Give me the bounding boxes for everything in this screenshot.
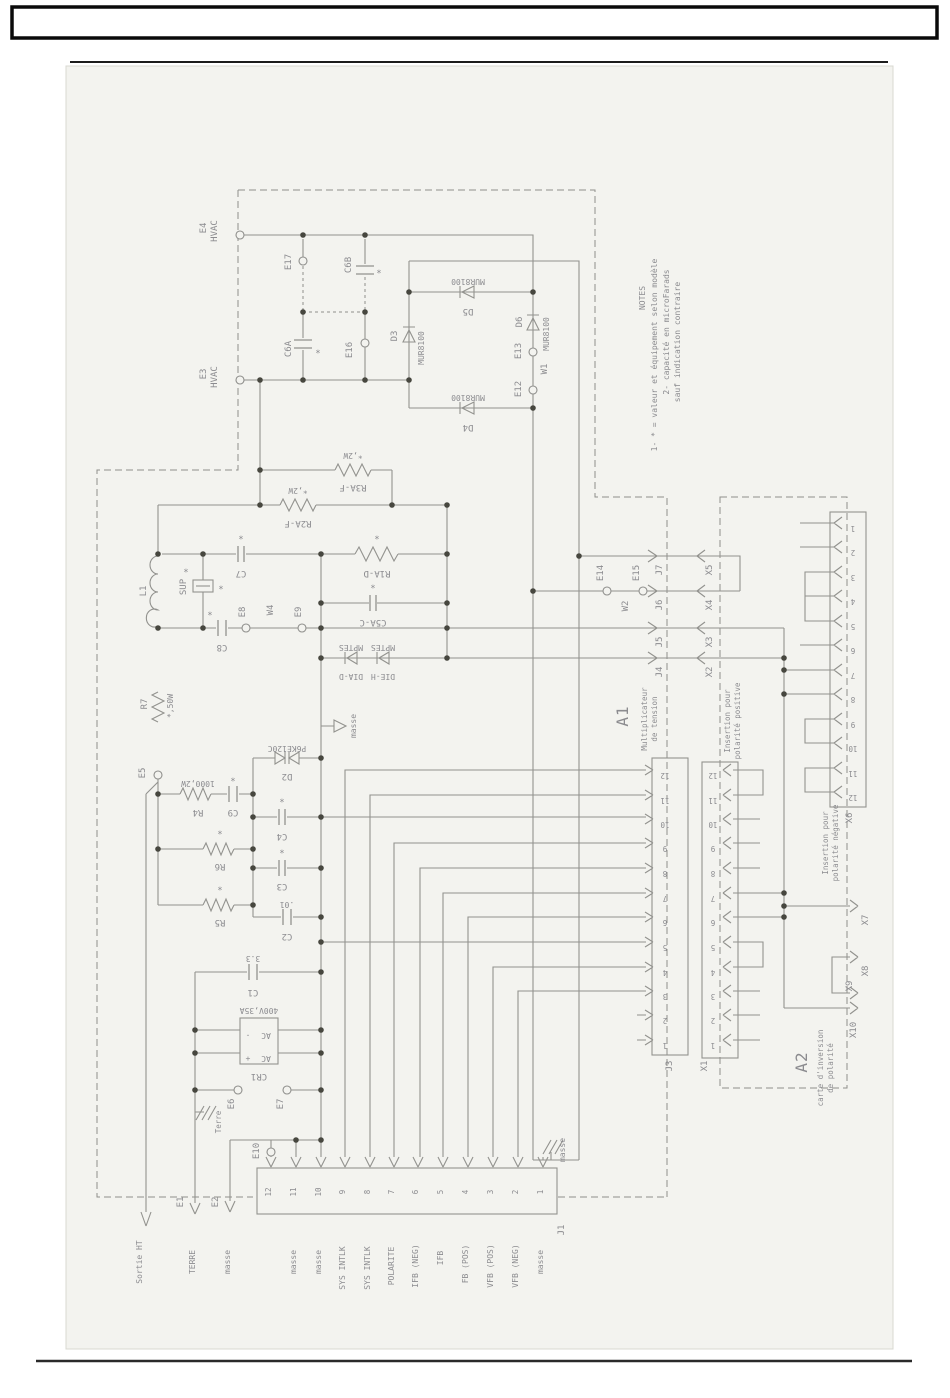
signal-sortie-ht: Sortie HT <box>135 1240 144 1284</box>
terminal-e7 <box>283 1086 291 1094</box>
label-e15: E15 <box>632 565 642 581</box>
label-e8: E8 <box>238 607 248 618</box>
j1-pin-1: 1 <box>536 1190 545 1195</box>
label-cr1-ac1: AC <box>261 1031 271 1040</box>
label-c3-star: * <box>279 849 284 859</box>
terminal-e5 <box>154 771 162 779</box>
j3-pin-5: 5 <box>663 943 668 952</box>
label-r3af: R3A-F <box>339 482 366 492</box>
terminal-e17 <box>299 257 307 265</box>
label-sup-star1: * <box>183 568 188 578</box>
label-d3-part: MUR8100 <box>417 331 426 365</box>
label-r1ad-star: * <box>374 535 379 545</box>
j3-pin-3: 3 <box>663 992 668 1001</box>
label-a2: A2 <box>792 1051 811 1072</box>
label-r1ad: R1A-D <box>363 568 390 578</box>
terminal-e15 <box>639 587 647 595</box>
x6-pin-5: 5 <box>851 622 856 631</box>
signal-j1-7: POLARITE <box>387 1247 396 1286</box>
signal-j1-4: FB (POS) <box>461 1245 470 1284</box>
label-d4-part: MUR8100 <box>451 393 485 402</box>
signal-j1-9: SYS INTLK <box>338 1246 347 1290</box>
label-e6: E6 <box>227 1099 237 1110</box>
label-sup-star2: * <box>218 585 223 595</box>
label-c4: C4 <box>277 831 288 841</box>
label-c1-val: 3.3 <box>246 954 261 963</box>
signal-j1-1: masse <box>536 1250 545 1274</box>
scan-area <box>66 66 893 1349</box>
x6-pin-8: 8 <box>850 695 855 704</box>
label-j1: J1 <box>557 1225 567 1236</box>
j1-pin-3: 3 <box>486 1190 495 1195</box>
x1-pin-11: 11 <box>708 796 717 805</box>
x6-pin-3: 3 <box>851 573 856 582</box>
signal-j1-2: VFB (NEG) <box>511 1244 520 1287</box>
signal-j1-11: masse <box>289 1250 298 1274</box>
header-box <box>12 7 937 38</box>
label-c8: C8 <box>217 642 228 652</box>
x6-pin-10: 10 <box>848 744 858 753</box>
label-r2af: R2A-F <box>284 518 311 528</box>
label-a1-sub2: de tension <box>650 696 659 741</box>
j1-pin-2: 2 <box>511 1190 520 1195</box>
schematic-canvas: E4 HVAC E3 HVAC E17 C6B * C6A * E16 D3 M… <box>0 0 950 1398</box>
notes-line2: 2- capacité en microFarads <box>661 269 671 394</box>
label-x8: X8 <box>861 966 871 977</box>
x1-pin-12: 12 <box>708 771 717 780</box>
j3-pin-6: 6 <box>662 918 667 927</box>
j1-pin-11: 11 <box>289 1187 298 1196</box>
terminal-e16 <box>361 339 369 347</box>
j3-pin-4: 4 <box>662 968 667 977</box>
label-e9: E9 <box>294 607 304 618</box>
terminal-e10 <box>267 1148 275 1156</box>
label-x10: X10 <box>849 1022 859 1038</box>
signal-j1-8: SYS INTLK <box>363 1246 372 1290</box>
label-mptes1: MPTES <box>339 643 363 652</box>
label-e1: E1 <box>176 1197 186 1208</box>
label-a2-sub2: de polarité <box>826 1043 835 1093</box>
label-x7: X7 <box>861 915 871 926</box>
j3-pin-11: 11 <box>660 796 669 805</box>
label-c5ac-star: * <box>370 584 375 594</box>
j3-pin-2: 2 <box>663 1016 668 1025</box>
x1-pin-9: 9 <box>711 844 716 853</box>
label-mptes2: MPTES <box>371 643 395 652</box>
j1-pin-10: 10 <box>314 1187 323 1197</box>
x6-pin-11: 11 <box>848 769 857 778</box>
label-c7: C7 <box>236 568 247 578</box>
label-r7-val: *,50W <box>166 694 175 718</box>
label-insertion-pos2: polarité positive <box>733 682 742 759</box>
signal-j1-3: VFB (POS) <box>486 1244 495 1287</box>
terminal-e8 <box>242 624 250 632</box>
label-w4: W4 <box>266 605 276 616</box>
x1-pin-10: 10 <box>708 820 718 829</box>
label-c9-star: * <box>230 777 235 787</box>
label-c6b: C6B <box>344 257 354 273</box>
scanned-schematic-page: E4 HVAC E3 HVAC E17 C6B * C6A * E16 D3 M… <box>0 0 950 1398</box>
label-c4-star: * <box>279 798 284 808</box>
label-c9: C9 <box>228 807 239 817</box>
label-insertion-pos1: Insertion pour <box>723 689 732 753</box>
terminal-e13 <box>529 348 537 356</box>
label-r4: R4 <box>193 807 204 817</box>
label-r6: R6 <box>215 861 226 871</box>
label-x4: X4 <box>705 600 715 611</box>
label-cr1-minus: - <box>246 1031 251 1040</box>
label-d2: D2 <box>282 771 293 781</box>
label-j3: J3 <box>665 1061 675 1072</box>
j1-pin-12: 12 <box>264 1187 273 1196</box>
label-a1: A1 <box>613 705 632 726</box>
label-x9: X9 <box>845 981 855 992</box>
j3-pin-1: 1 <box>663 1041 668 1050</box>
label-dia-d: DIA-D <box>339 672 363 681</box>
signal-j1-5: IFB <box>436 1251 445 1266</box>
notes-line3: sauf indication contraire <box>673 282 682 403</box>
label-sup: SUP <box>179 578 189 595</box>
label-die-h: DIE-H <box>371 672 395 681</box>
j1-pin-5: 5 <box>436 1190 445 1195</box>
label-a2-sub1: carte d'inversion <box>816 1030 825 1107</box>
x1-pin-7: 7 <box>711 894 716 903</box>
label-x2: X2 <box>705 667 715 678</box>
x6-pin-4: 4 <box>850 597 855 606</box>
label-d6: D6 <box>515 317 525 328</box>
label-c6a-star: * <box>315 349 320 359</box>
label-d6-part: MUR8100 <box>542 317 551 351</box>
label-c6b-star: * <box>376 269 381 279</box>
x6-pin-7: 7 <box>851 671 856 680</box>
terminal-e9 <box>298 624 306 632</box>
label-a1-sub1: Multiplicateur <box>640 687 649 751</box>
terminal-e12 <box>529 386 537 394</box>
label-c8-star: * <box>207 611 212 621</box>
notes-line1: 1- * = valeur et équipement selon modèle <box>649 258 659 451</box>
label-e3-hvac: HVAC <box>210 366 220 388</box>
label-e12: E12 <box>514 381 524 397</box>
label-e13: E13 <box>514 343 524 359</box>
label-r7: R7 <box>140 699 150 710</box>
label-e17: E17 <box>284 254 294 270</box>
label-d2-part: P6KE120C <box>268 744 307 753</box>
label-r5: R5 <box>215 917 226 927</box>
label-e2: E2 <box>211 1197 221 1208</box>
x1-pin-4: 4 <box>710 968 715 977</box>
j3-pin-10: 10 <box>660 820 670 829</box>
x1-pin-1: 1 <box>711 1041 716 1050</box>
x1-pin-8: 8 <box>710 869 715 878</box>
label-d5: D5 <box>463 306 474 316</box>
x1-pin-2: 2 <box>711 1016 716 1025</box>
label-e7: E7 <box>276 1099 286 1110</box>
label-c7-star: * <box>238 535 243 545</box>
j1-pin-9: 9 <box>338 1190 347 1195</box>
label-x3: X3 <box>705 637 715 648</box>
label-w2: W2 <box>621 601 631 612</box>
x6-pin-6: 6 <box>850 646 855 655</box>
label-w1: W1 <box>540 364 550 375</box>
label-j1-gnd: masse <box>558 1138 567 1162</box>
terminal-e6 <box>234 1086 242 1094</box>
notes-title: NOTES <box>638 286 647 310</box>
label-r6-star: * <box>217 830 222 840</box>
j1-pin-4: 4 <box>461 1189 470 1194</box>
label-c2: C2 <box>282 931 293 941</box>
label-e3: E3 <box>199 369 209 380</box>
label-l1: L1 <box>139 586 149 597</box>
label-c1: C1 <box>248 987 259 997</box>
label-r2af-val: *,2W <box>288 486 307 495</box>
label-masse-arrow: masse <box>349 714 358 738</box>
j1-pin-8: 8 <box>363 1189 372 1194</box>
j3-pin-7: 7 <box>663 894 668 903</box>
terminal-e4 <box>236 231 244 239</box>
j3-pin-8: 8 <box>662 869 667 878</box>
label-d4: D4 <box>463 422 474 432</box>
label-c5ac: C5A-C <box>359 617 386 627</box>
signal-terre: TERRE <box>188 1250 197 1274</box>
label-e4: E4 <box>199 223 209 234</box>
signal-j1-10: masse <box>314 1250 323 1274</box>
label-r5-star: * <box>217 886 222 896</box>
j1-pin-7: 7 <box>387 1190 396 1195</box>
label-insertion-neg2: polarité négative <box>831 804 840 881</box>
label-r4-val: 1000,2W <box>181 779 215 788</box>
label-e5: E5 <box>138 768 148 779</box>
label-cr1-plus: + <box>245 1054 250 1063</box>
label-d3: D3 <box>390 331 400 342</box>
label-insertion-neg1: Insertion pour <box>821 811 830 875</box>
label-cr1-val: 400V,35A <box>240 1006 279 1015</box>
label-cr1-ac2: AC <box>261 1054 271 1063</box>
x6-pin-9: 9 <box>851 720 856 729</box>
label-x5: X5 <box>705 565 715 576</box>
label-e10: E10 <box>252 1143 262 1159</box>
label-c6a: C6A <box>284 340 294 357</box>
j1-pin-6: 6 <box>411 1189 420 1194</box>
label-j4: J4 <box>655 667 665 678</box>
label-c3: C3 <box>277 881 288 891</box>
x1-pin-5: 5 <box>711 943 716 952</box>
label-d5-part: MUR8100 <box>451 277 485 286</box>
terminal-e14 <box>603 587 611 595</box>
label-c2-val: .01 <box>280 900 295 909</box>
page-header-frame <box>12 7 937 62</box>
terminal-e3 <box>236 376 244 384</box>
label-r3af-val: *,2W <box>343 451 362 460</box>
label-e14: E14 <box>596 565 606 581</box>
label-x1: X1 <box>700 1061 710 1072</box>
label-j6: J6 <box>655 600 665 611</box>
x6-pin-12: 12 <box>848 793 857 802</box>
label-e4-hvac: HVAC <box>210 220 220 242</box>
label-j7: J7 <box>655 565 665 576</box>
x1-pin-3: 3 <box>711 992 716 1001</box>
label-x6: X6 <box>845 813 855 824</box>
signal-e2-masse: masse <box>223 1250 232 1274</box>
label-cr1: CR1 <box>251 1071 267 1081</box>
label-terre: Terre <box>214 1110 223 1133</box>
j3-pin-12: 12 <box>660 771 669 780</box>
x6-pin-2: 2 <box>851 548 856 557</box>
label-e16: E16 <box>345 342 355 358</box>
x6-pin-1: 1 <box>851 524 856 533</box>
signal-j1-6: IFB (NEG) <box>411 1244 420 1287</box>
j3-pin-9: 9 <box>663 844 668 853</box>
x1-pin-6: 6 <box>710 918 715 927</box>
label-j5: J5 <box>655 637 665 648</box>
